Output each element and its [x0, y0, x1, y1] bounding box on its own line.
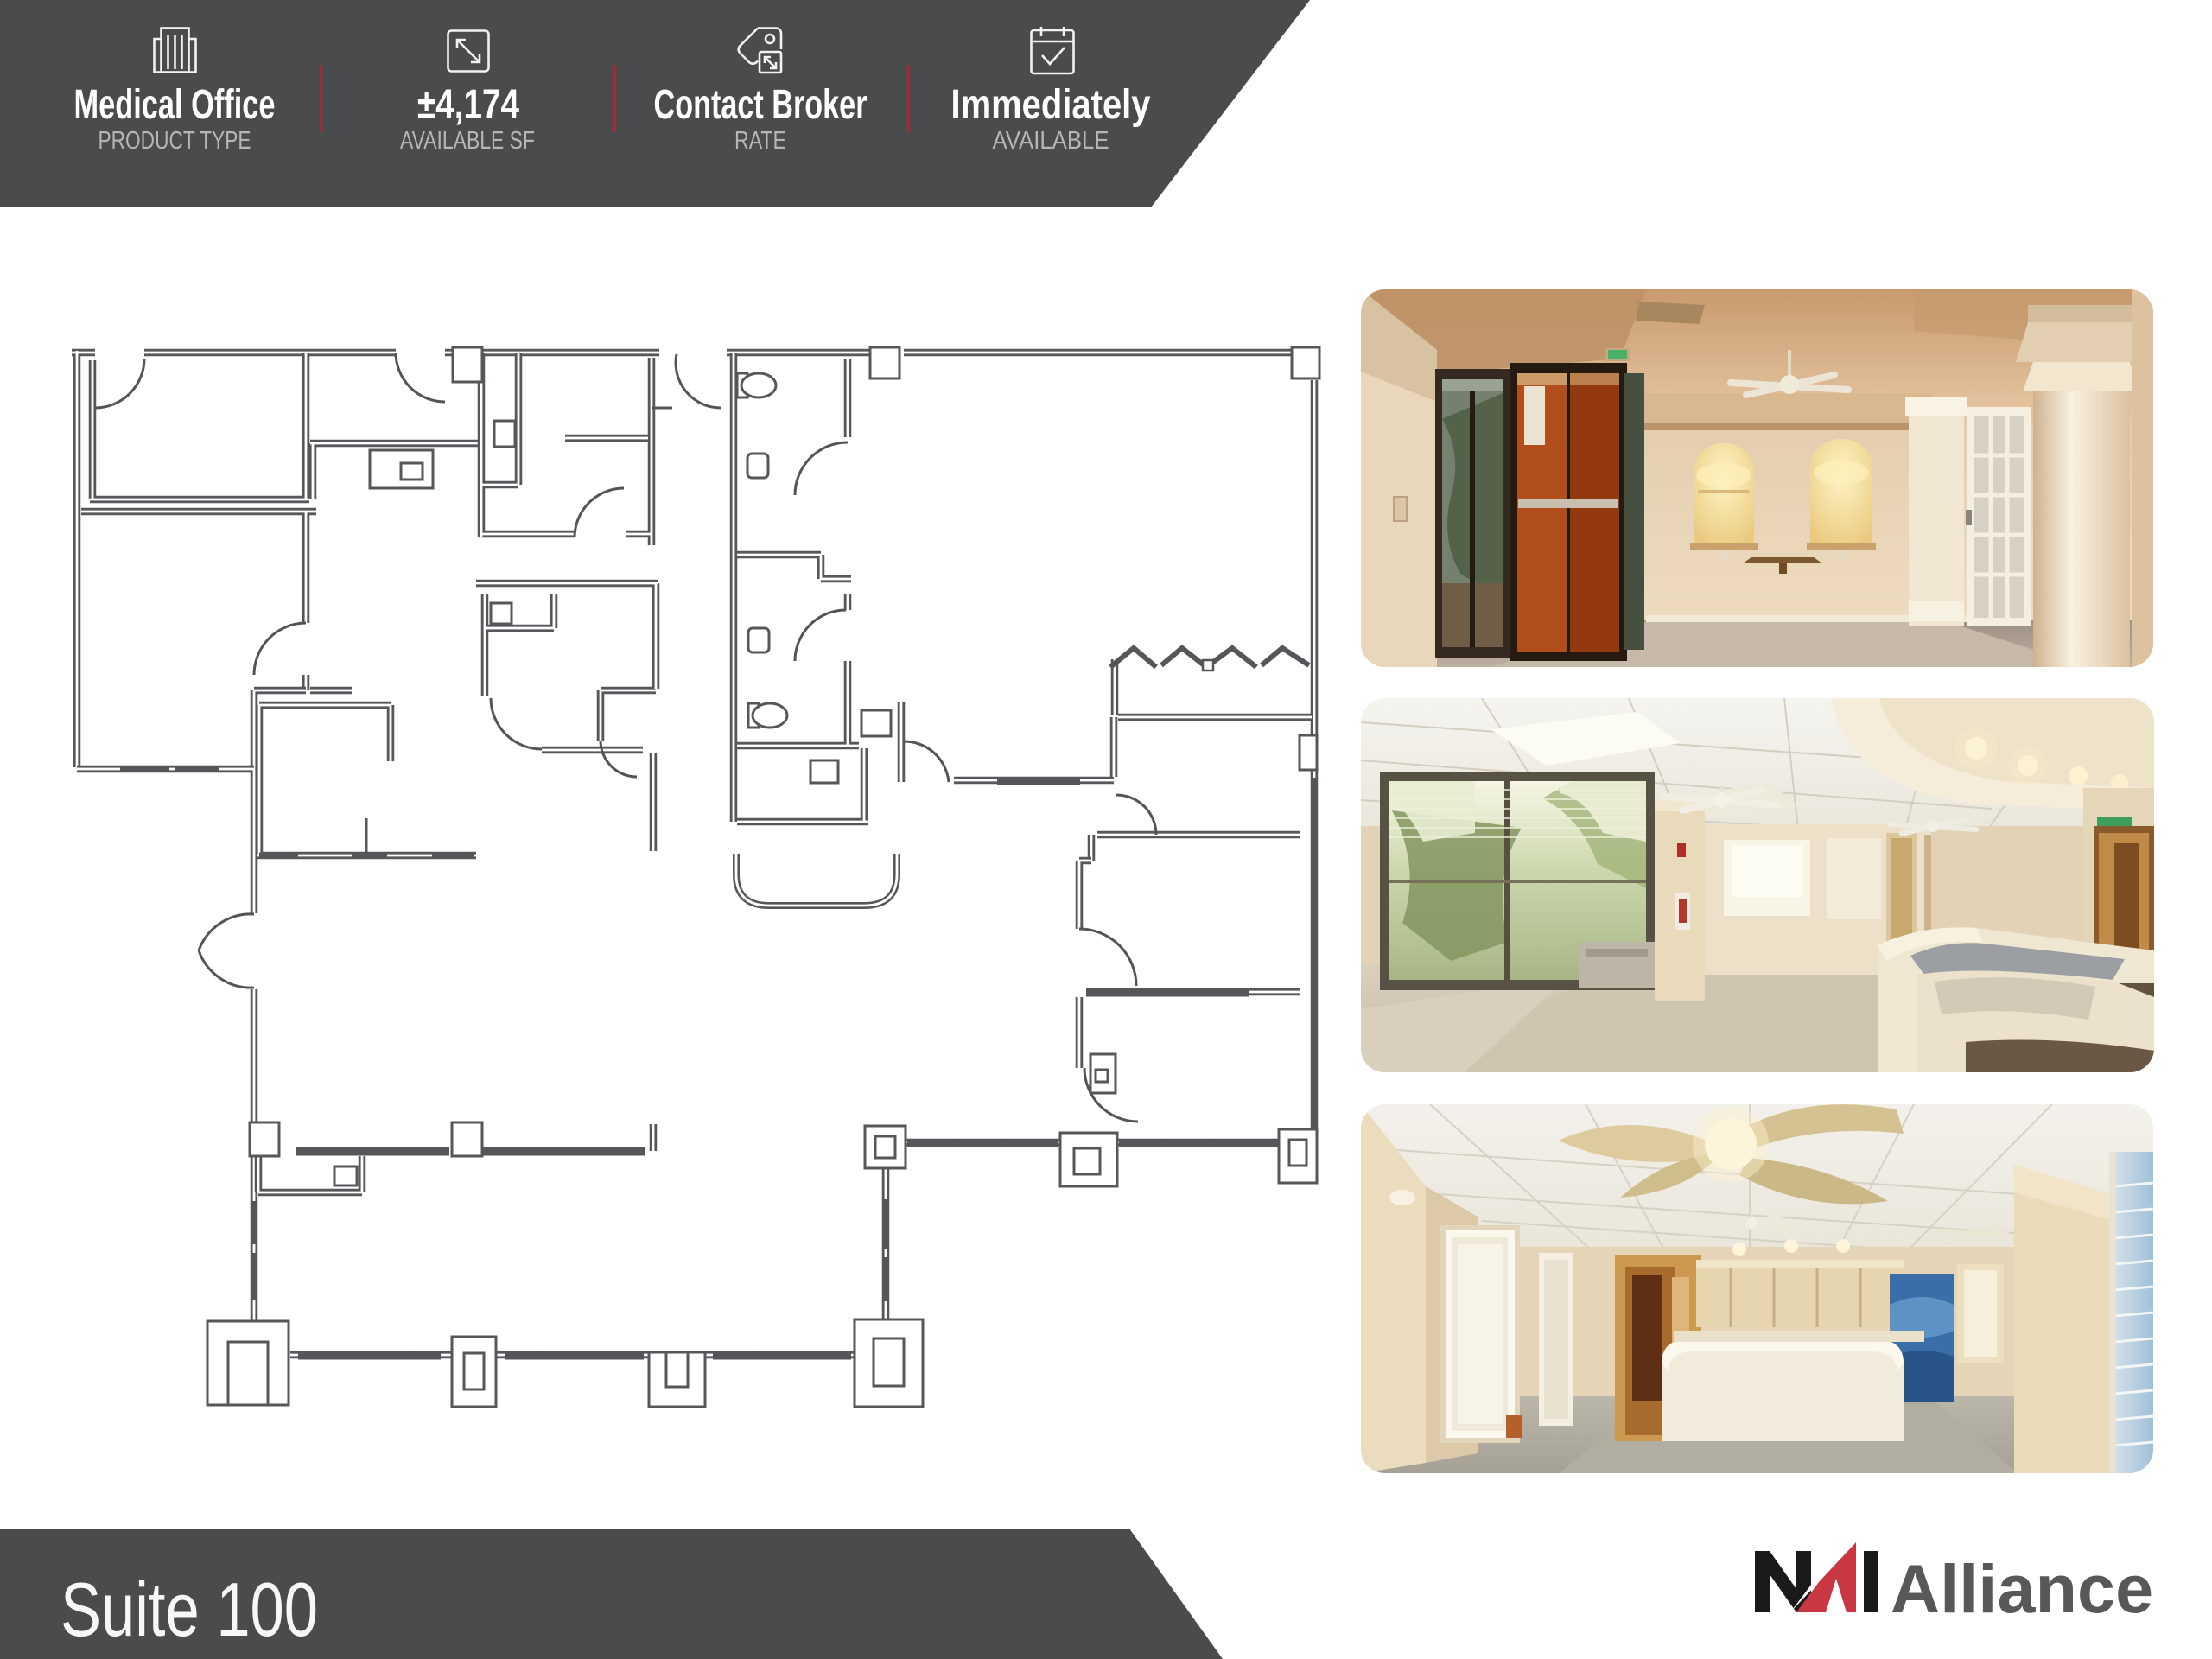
svg-text:AVAILABLE: AVAILABLE [993, 127, 1109, 155]
svg-text:Alliance: Alliance [1891, 1550, 2153, 1624]
svg-text:Contact Broker: Contact Broker [654, 82, 868, 128]
svg-text:Immediately: Immediately [951, 82, 1151, 128]
svg-text:±4,174: ±4,174 [417, 82, 519, 128]
svg-text:Medical Office: Medical Office [74, 82, 276, 128]
svg-text:RATE: RATE [734, 127, 786, 155]
svg-text:AVAILABLE SF: AVAILABLE SF [400, 127, 535, 155]
svg-text:PRODUCT TYPE: PRODUCT TYPE [99, 127, 251, 155]
svg-text:Suite 100: Suite 100 [60, 1567, 318, 1652]
